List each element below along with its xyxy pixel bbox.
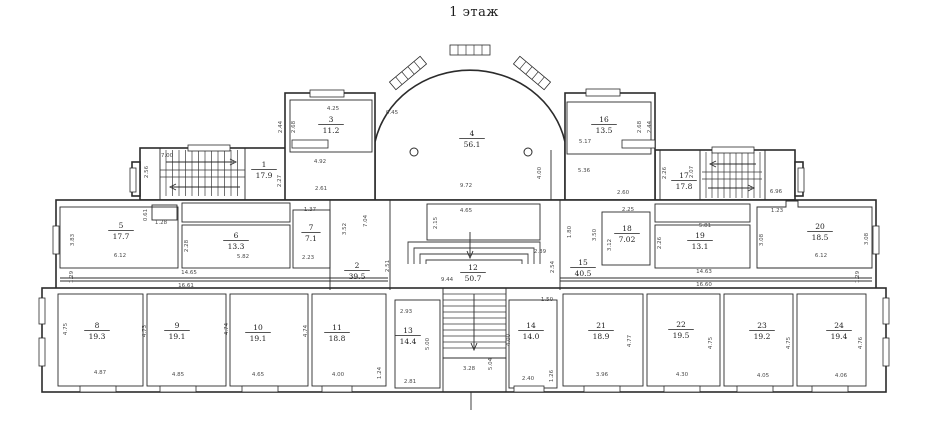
dimension-label: 2.68 xyxy=(637,120,643,133)
dimension-label: 9.44 xyxy=(441,277,454,283)
room-number: 20 xyxy=(815,222,825,231)
dimension-label: 2.28 xyxy=(184,239,190,252)
room-number: 8 xyxy=(95,321,100,330)
column xyxy=(410,148,418,156)
dimension-label: 2.54 xyxy=(550,260,556,273)
dimension-label: 14.63 xyxy=(696,269,712,275)
room-area: 13.1 xyxy=(692,242,709,251)
dimension-label: 0.45 xyxy=(386,110,399,116)
dimension-label: 4.77 xyxy=(627,334,633,347)
dimension-label: 2.15 xyxy=(433,216,439,229)
dimension-label: 5.36 xyxy=(578,168,591,174)
dimension-label: 1.26 xyxy=(549,369,555,382)
room-number: 18 xyxy=(622,224,632,233)
dimension-label: 3.83 xyxy=(70,233,76,246)
dimension-label: 4.00 xyxy=(537,166,543,179)
dimension-label: 1.24 xyxy=(377,366,383,379)
dimension-label: 4.73 xyxy=(142,324,148,337)
dimension-label: 4.74 xyxy=(224,322,230,335)
dimension-label: 1.28 xyxy=(155,220,168,226)
column xyxy=(524,148,532,156)
room-number: 10 xyxy=(253,323,263,332)
dimension-label: 5.82 xyxy=(237,254,249,260)
room-area: 11.2 xyxy=(323,126,340,135)
room-area: 17.7 xyxy=(113,232,130,241)
room-area: 13.5 xyxy=(596,126,613,135)
dimension-label: 4.65 xyxy=(460,208,473,214)
room-number: 5 xyxy=(119,221,124,230)
dimension-label: 6.96 xyxy=(770,189,783,195)
room-number: 13 xyxy=(403,326,413,335)
dimension-label: 2.23 xyxy=(302,255,315,261)
room-area: 17.9 xyxy=(256,171,273,180)
dimension-label: 5.04 xyxy=(488,357,494,370)
room-area: 19.3 xyxy=(89,332,106,341)
room-number: 24 xyxy=(834,321,844,330)
dimension-label: 5.17 xyxy=(579,139,592,145)
room-area: 50.7 xyxy=(465,274,482,283)
dimension-label: 4.76 xyxy=(858,336,864,349)
room-number: 12 xyxy=(468,263,478,272)
dimension-label: 7.00 xyxy=(161,153,174,159)
room-area: 19.1 xyxy=(169,332,186,341)
room-area: 18.9 xyxy=(593,332,610,341)
dimension-label: 2.40 xyxy=(522,376,535,382)
room-area: 18.5 xyxy=(812,233,829,242)
room-number: 9 xyxy=(175,321,180,330)
room-area: 14.0 xyxy=(523,332,540,341)
dimension-label: 3.08 xyxy=(864,232,870,245)
dimension-label: 2.56 xyxy=(144,165,150,178)
dimension-label: 1.37 xyxy=(304,207,317,213)
dimension-label: 4.25 xyxy=(327,106,340,112)
room-number: 23 xyxy=(757,321,767,330)
dimension-label: 2.44 xyxy=(278,120,284,133)
dimension-label: 4.87 xyxy=(94,370,107,376)
room-number: 15 xyxy=(578,258,588,267)
dimension-label: 6.12 xyxy=(815,253,827,259)
dimension-label: 1.50 xyxy=(541,297,554,303)
dimension-label: 2.61 xyxy=(315,186,327,192)
room-area: 39.5 xyxy=(349,272,366,281)
dimension-label: 4.00 xyxy=(506,333,512,346)
dimension-label: 2.44 xyxy=(647,120,653,133)
dimension-label: 3.52 xyxy=(342,223,348,235)
dimension-label: 7.04 xyxy=(363,214,369,227)
room-area: 7.1 xyxy=(305,234,317,243)
room-number: 22 xyxy=(676,320,686,329)
dimension-label: 1.23 xyxy=(771,208,784,214)
room-area: 19.2 xyxy=(754,332,771,341)
dimension-label: 4.92 xyxy=(314,159,326,165)
dimension-label: 1.29 xyxy=(69,270,75,283)
dimension-label: 2.39 xyxy=(534,249,547,255)
room-area: 56.1 xyxy=(464,140,481,149)
dimension-label: 16.60 xyxy=(696,282,712,288)
dimension-label: 4.65 xyxy=(252,372,265,378)
dimension-label: 2.68 xyxy=(291,120,297,133)
room-area: 19.1 xyxy=(250,334,267,343)
outer-walls xyxy=(42,70,886,392)
room-area: 40.5 xyxy=(575,269,592,278)
dimension-label: 2.25 xyxy=(622,207,635,213)
room-area: 19.4 xyxy=(831,332,848,341)
dimension-label: 2.93 xyxy=(400,309,413,315)
room-area: 13.3 xyxy=(228,242,245,251)
dimension-label: 3.08 xyxy=(759,233,765,246)
room-area: 17.8 xyxy=(676,182,693,191)
floor-title: 1 этаж xyxy=(0,5,948,20)
room-area: 19.5 xyxy=(673,331,690,340)
dimension-label: 3.28 xyxy=(463,366,476,372)
room-number: 7 xyxy=(309,223,314,232)
dimension-label: 14.65 xyxy=(181,270,197,276)
room-area: 18.8 xyxy=(329,334,346,343)
dimension-label: 4.00 xyxy=(332,372,345,378)
floor-plan-canvas: 117.9239.5311.2456.1517.7613.377.1819.39… xyxy=(0,0,948,428)
dimension-label: 4.85 xyxy=(172,372,185,378)
room-number: 3 xyxy=(329,115,334,124)
dimension-label: 2.60 xyxy=(617,190,630,196)
dimension-label: 4.05 xyxy=(757,373,770,379)
room-number: 4 xyxy=(470,129,475,138)
dimension-label: 3.96 xyxy=(596,372,609,378)
dimension-label: 4.30 xyxy=(676,372,689,378)
arc-window xyxy=(450,45,490,55)
room-area: 14.4 xyxy=(400,337,417,346)
dimension-label: 4.75 xyxy=(708,336,714,349)
dimension-label: 5.81 xyxy=(699,223,711,229)
dimension-label: 6.12 xyxy=(114,253,126,259)
room-number: 2 xyxy=(355,261,360,270)
room-number: 19 xyxy=(695,231,705,240)
dimension-label: 3.50 xyxy=(592,228,598,241)
dimension-label: 2.07 xyxy=(689,165,695,178)
room-number: 17 xyxy=(679,171,689,180)
dimension-label: 9.72 xyxy=(460,183,472,189)
dimension-label: 4.75 xyxy=(63,322,69,335)
dimension-label: 0.61 xyxy=(143,209,149,221)
dimension-label: 2.26 xyxy=(657,236,663,249)
dimension-label: 16.61 xyxy=(178,283,194,289)
room-number: 14 xyxy=(526,321,536,330)
dimension-label: 3.12 xyxy=(607,239,613,251)
dimension-label: 2.51 xyxy=(385,260,391,272)
room-number: 1 xyxy=(262,160,267,169)
dimension-label: 2.81 xyxy=(404,379,416,385)
room-number: 11 xyxy=(332,323,342,332)
dimension-label: 1.29 xyxy=(855,270,861,283)
dimension-label: 1.80 xyxy=(567,225,573,238)
dimension-label: 4.06 xyxy=(835,373,848,379)
dimension-label: 4.74 xyxy=(303,324,309,337)
dimension-label: 2.26 xyxy=(662,166,668,179)
room-number: 16 xyxy=(599,115,609,124)
dimension-label: 5.00 xyxy=(425,337,431,350)
room-number: 21 xyxy=(596,321,606,330)
room-area: 7.02 xyxy=(619,235,636,244)
dimension-label: 2.27 xyxy=(277,174,283,187)
room-number: 6 xyxy=(234,231,239,240)
dimension-label: 4.75 xyxy=(786,336,792,349)
